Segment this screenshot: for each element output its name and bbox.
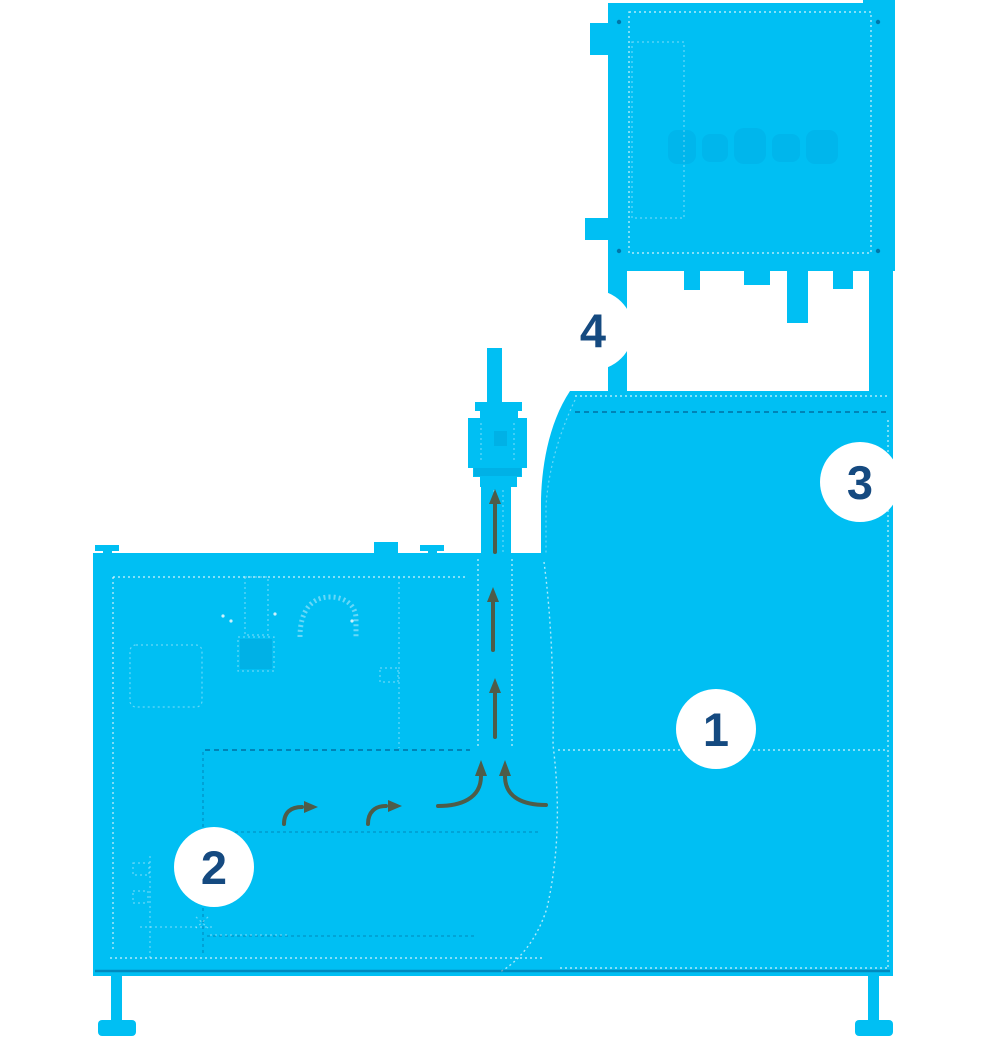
callout-badge-3[interactable]: 3 xyxy=(820,442,900,522)
bolt-icon xyxy=(617,249,621,253)
callout-badge-1[interactable]: 1 xyxy=(676,689,756,769)
filling-valve xyxy=(468,348,527,557)
machine-feet xyxy=(98,976,893,1036)
foot-left xyxy=(111,976,122,1022)
cabinet-logo-watermark xyxy=(668,128,838,164)
pump-block xyxy=(240,639,272,669)
bolt-icon xyxy=(876,20,880,24)
callout-number: 3 xyxy=(847,459,873,506)
bolt-icon xyxy=(617,20,621,24)
foot-right xyxy=(868,976,879,1022)
bolt-icon xyxy=(876,249,880,253)
bolt-icon xyxy=(95,545,119,551)
cabinet-support-frame xyxy=(608,271,893,393)
callout-badge-4[interactable]: 4 xyxy=(553,290,633,370)
top-cabinet xyxy=(585,0,895,271)
mount-block xyxy=(374,542,398,554)
machine-diagram: 1 2 3 4 xyxy=(0,0,1000,1040)
frame-post-right xyxy=(869,271,893,393)
callout-number: 4 xyxy=(580,307,606,354)
bolt-icon xyxy=(420,545,444,551)
callout-badge-2[interactable]: 2 xyxy=(174,827,254,907)
callout-number: 1 xyxy=(703,706,729,753)
callout-number: 2 xyxy=(201,844,227,891)
